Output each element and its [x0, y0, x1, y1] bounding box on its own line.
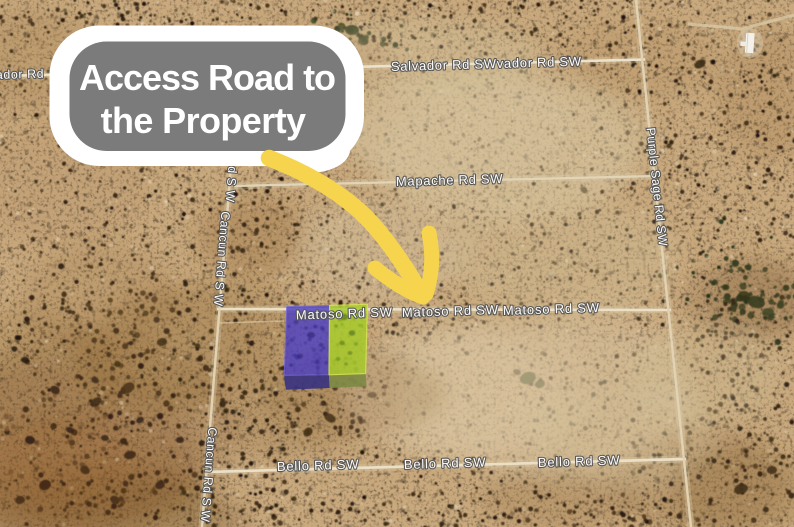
svg-text:the Property: the Property — [101, 100, 306, 141]
svg-text:Access Road to: Access Road to — [79, 57, 335, 98]
